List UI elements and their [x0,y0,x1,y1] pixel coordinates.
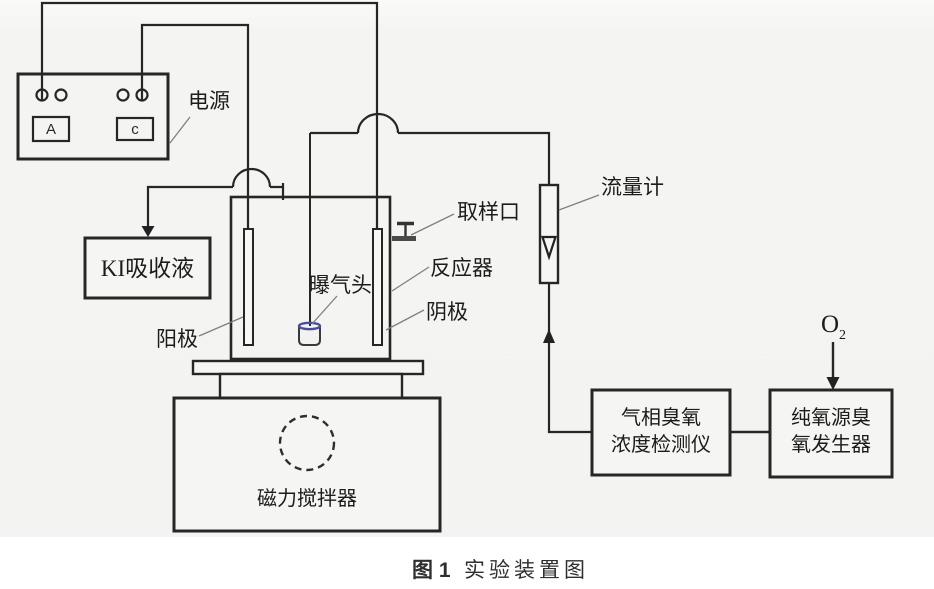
flow-meter-label: 流量计 [601,175,664,199]
ki-absorber-label: KI吸收液 [101,256,194,281]
sampling-port-label: 取样口 [457,200,520,224]
power-supply-label: 电源 [188,89,230,113]
ozone-detector-label-line1: 气相臭氧 [621,406,701,429]
ozone-detector-label-line2: 浓度检测仪 [611,433,711,456]
cathode-electrode [373,229,382,345]
apparatus-diagram: A c 电源 KI吸收液 取样口 流量计 阳极 曝气头 反应器 阴极 磁力搅拌器 [0,0,934,589]
ozone-generator-label-line2: 氧发生器 [791,433,871,456]
magnetic-stirrer-body [174,398,440,531]
aerator-label: 曝气头 [309,273,372,297]
meter-c-label: c [131,121,139,138]
ammeter-label: A [46,121,56,138]
cathode-label: 阴极 [426,300,468,324]
anode-label: 阳极 [156,327,198,351]
experimental-setup-figure: A c 电源 KI吸收液 取样口 流量计 阳极 曝气头 反应器 阴极 磁力搅拌器 [0,0,934,589]
ozone-generator-label-line1: 纯氧源臭 [791,406,871,429]
magnetic-stirrer-label: 磁力搅拌器 [257,487,357,510]
reactor-label: 反应器 [430,256,493,280]
flow-meter-body [540,185,558,283]
ozone-detector-box [592,390,730,475]
stand-plate [193,361,423,374]
oxygen-symbol: O [821,311,839,338]
stirrer-pedestal [220,374,402,398]
caption-title: 实验装置图 [464,559,589,582]
anode-electrode [244,229,253,345]
caption-figure-number: 图 1 [412,559,451,582]
oxygen-subscript: 2 [839,328,846,343]
